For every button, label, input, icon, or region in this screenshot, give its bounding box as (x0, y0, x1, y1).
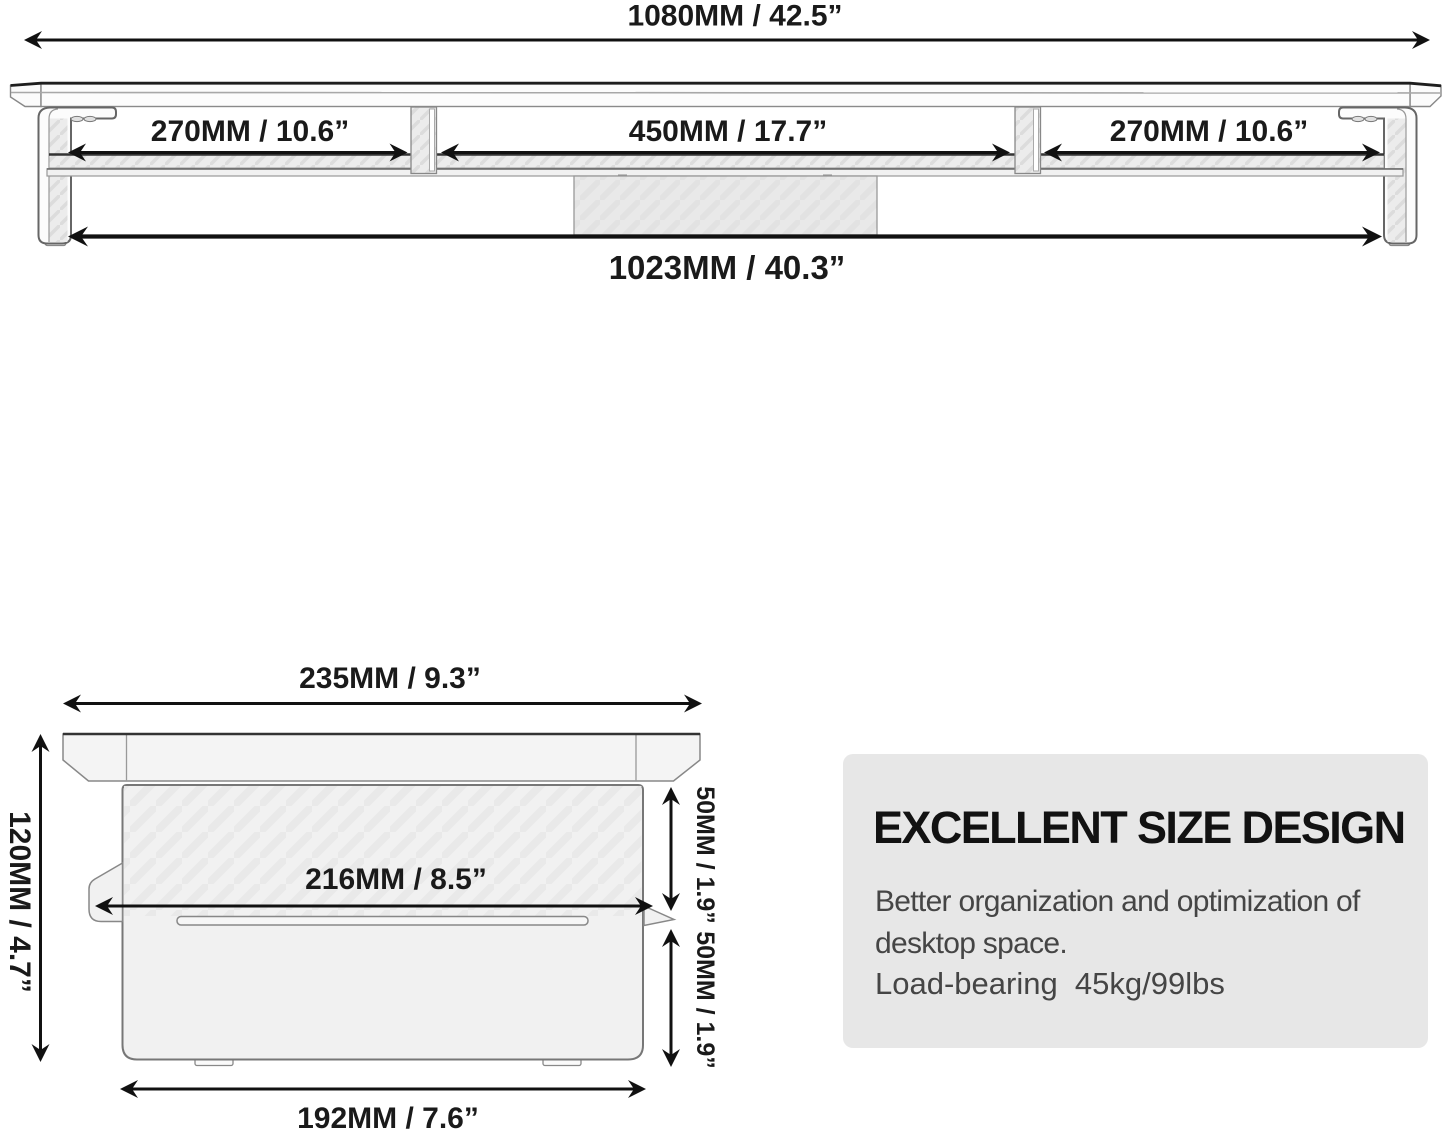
svg-text:216MM / 8.5”: 216MM / 8.5” (305, 863, 487, 896)
svg-text:192MM / 7.6”: 192MM / 7.6” (297, 1102, 479, 1135)
svg-text:270MM / 10.6”: 270MM / 10.6” (151, 115, 349, 148)
svg-text:EXCELLENT SIZE DESIGN: EXCELLENT SIZE DESIGN (873, 802, 1404, 853)
svg-text:50MM / 1.9”: 50MM / 1.9” (691, 786, 719, 924)
svg-text:120MM / 4.7”: 120MM / 4.7” (3, 811, 36, 993)
svg-text:1080MM / 42.5”: 1080MM / 42.5” (627, 0, 842, 33)
svg-text:1023MM / 40.3”: 1023MM / 40.3” (609, 249, 846, 286)
svg-text:desktop space.: desktop space. (875, 927, 1067, 960)
svg-text:270MM / 10.6”: 270MM / 10.6” (1110, 115, 1308, 148)
svg-text:Better organization and optimi: Better organization and optimization of (875, 885, 1361, 918)
svg-text:Load-bearing 45kg/99lbs: Load-bearing 45kg/99lbs (875, 966, 1225, 1001)
svg-text:450MM / 17.7”: 450MM / 17.7” (629, 115, 827, 148)
svg-text:50MM / 1.9”: 50MM / 1.9” (691, 931, 719, 1069)
svg-text:235MM / 9.3”: 235MM / 9.3” (299, 662, 481, 695)
